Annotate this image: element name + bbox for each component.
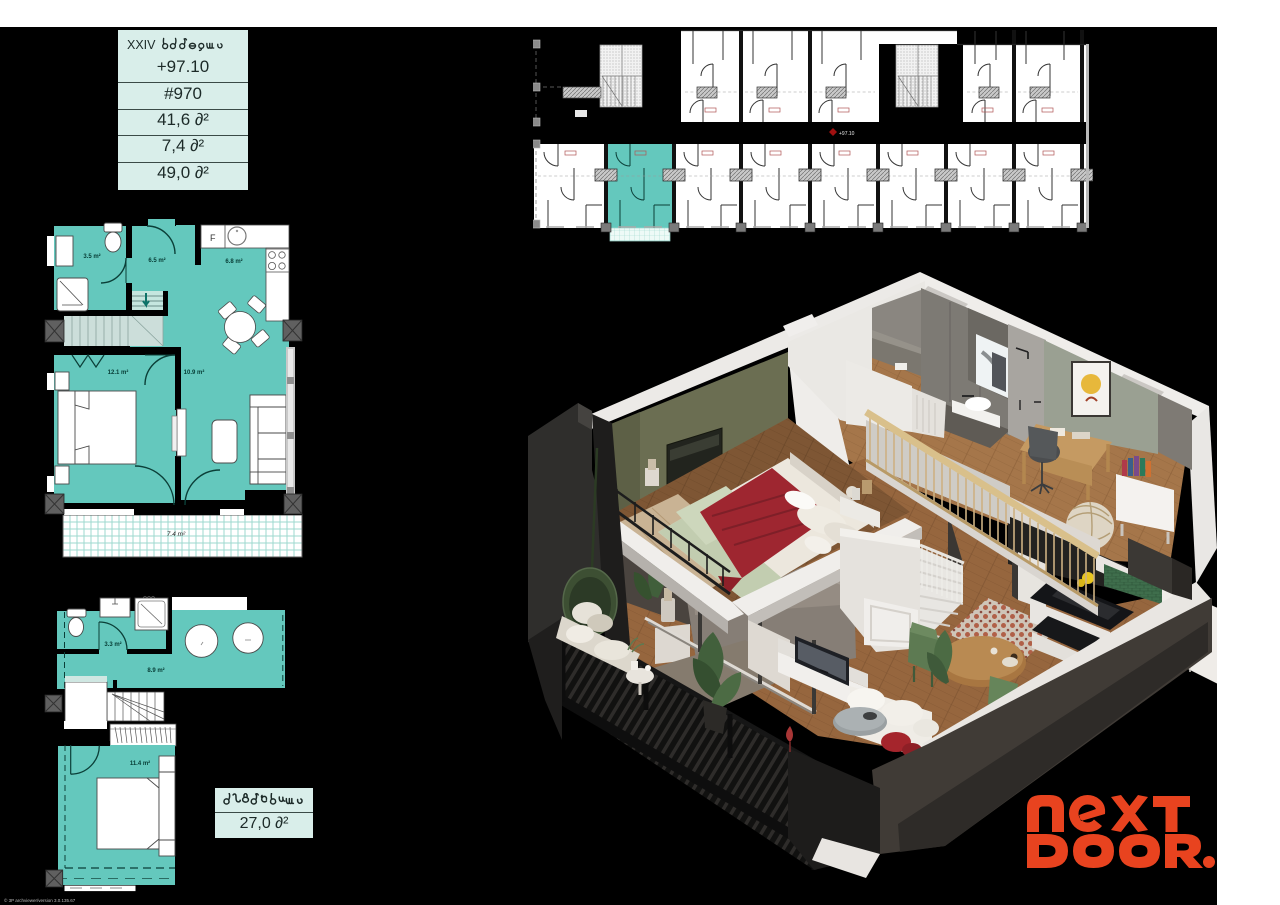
svg-text:6.5 m²: 6.5 m² — [148, 257, 165, 264]
svg-text:10.9 m²: 10.9 m² — [184, 369, 205, 376]
svg-text:7.4 m²: 7.4 m² — [167, 531, 186, 538]
svg-text:+97.10: +97.10 — [839, 131, 855, 137]
svg-text:11.4 m²: 11.4 m² — [130, 760, 150, 767]
svg-text:XXIV: XXIV — [127, 38, 156, 52]
svg-text:F: F — [210, 233, 216, 243]
svg-text:3.3 m²: 3.3 m² — [104, 641, 121, 648]
svg-text:6.8 m²: 6.8 m² — [225, 258, 242, 265]
svg-text:3.5 m²: 3.5 m² — [83, 253, 100, 260]
svg-text:8.9 m²: 8.9 m² — [147, 667, 164, 674]
svg-text:12.1 m²: 12.1 m² — [108, 369, 129, 376]
